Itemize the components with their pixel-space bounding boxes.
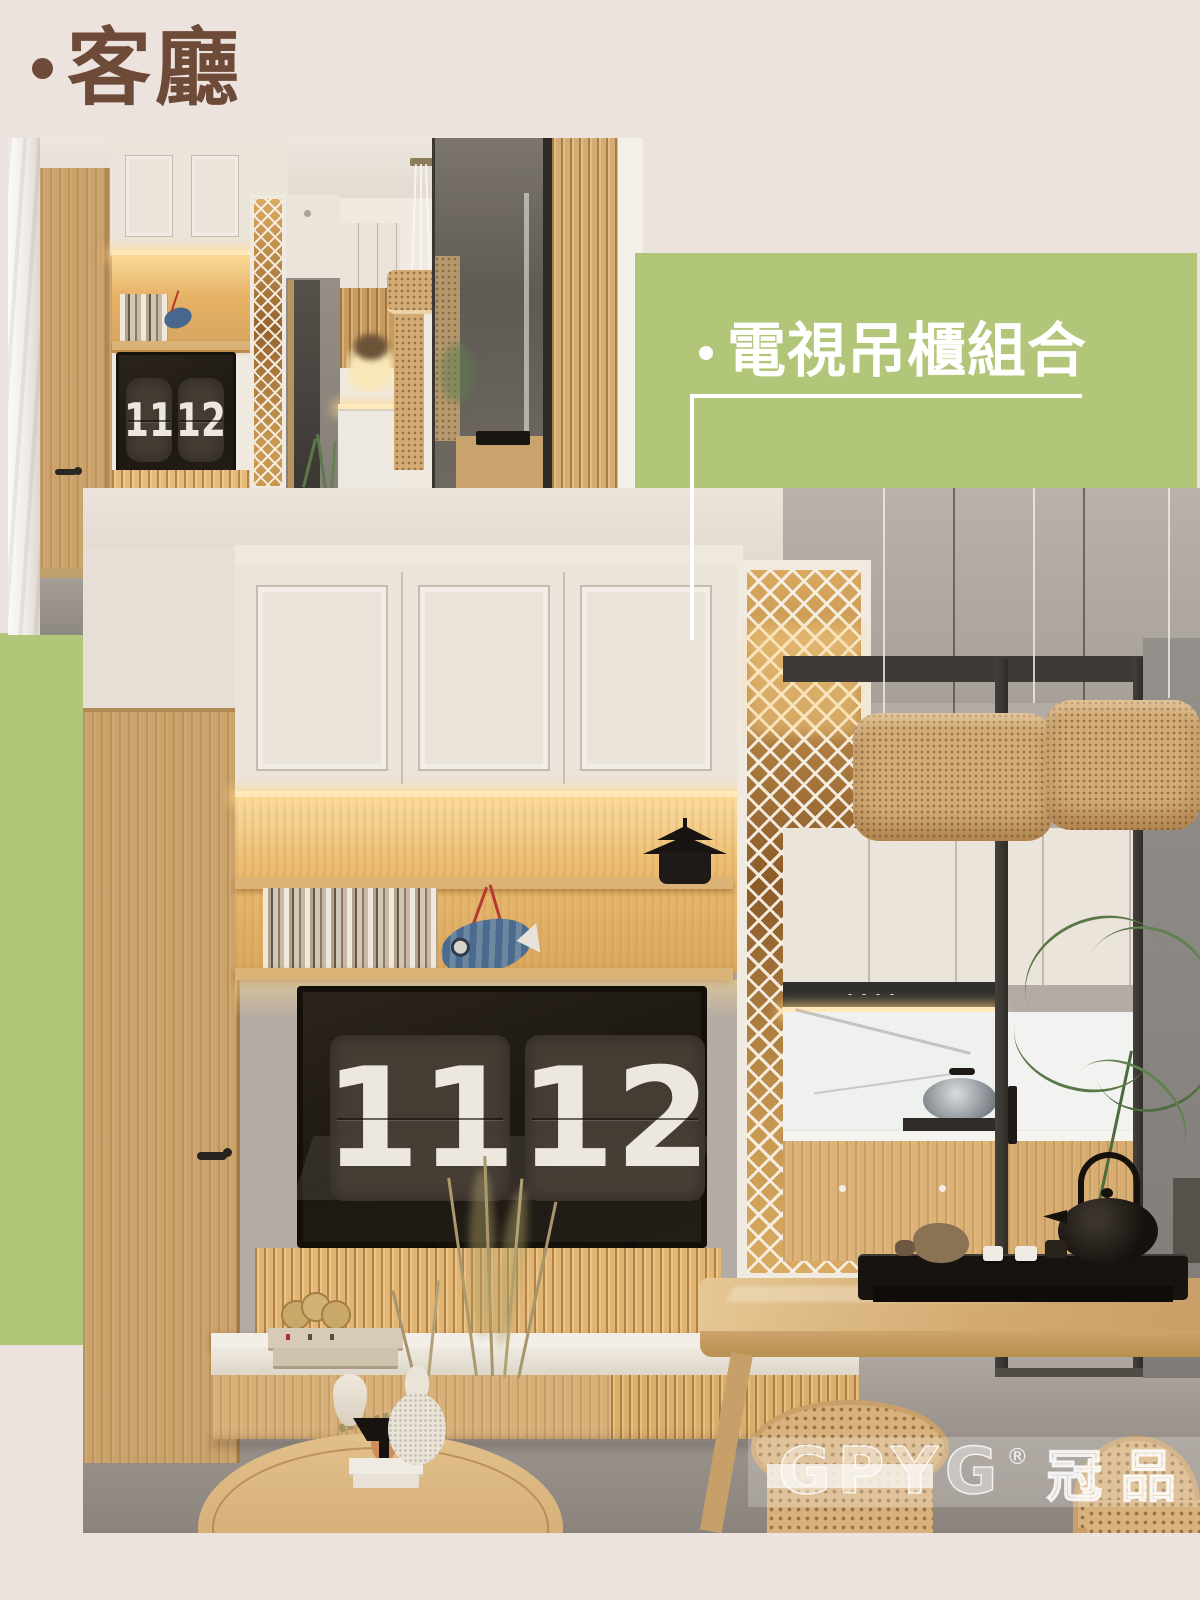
plant-stand	[1173, 1178, 1200, 1263]
marble-vein	[795, 1008, 970, 1054]
flip-clock-card: 12	[525, 1035, 705, 1201]
photo-tv-wall-closeup: 11 12	[83, 488, 1200, 1533]
label-bullet: ·	[699, 346, 713, 360]
flip-clock-minutes: 12	[176, 393, 226, 447]
shelf-board	[112, 341, 252, 350]
bamboo-scroll	[321, 1300, 351, 1330]
cabinet-cornice	[235, 545, 743, 567]
mirror-tray-reflection	[476, 431, 530, 445]
watermark-cjk-text: 冠品	[1046, 1432, 1194, 1513]
artwork-shade	[354, 334, 388, 360]
cabinet-door	[184, 148, 246, 244]
page-title-text: 客廳	[67, 24, 243, 112]
teapot-knob	[1101, 1188, 1113, 1198]
tea-cup	[1015, 1246, 1037, 1261]
mirror-doorframe-reflection	[524, 193, 529, 443]
white-speckled-vase	[388, 1393, 446, 1465]
mirror	[432, 138, 546, 490]
cabinet-knob	[839, 1185, 846, 1192]
cabinet-door	[243, 572, 403, 784]
range-hood	[783, 982, 998, 1008]
tea-tray-base	[873, 1286, 1173, 1302]
pendant-wire	[1168, 488, 1170, 698]
wok-handle	[949, 1068, 975, 1075]
hall-wall-upper	[286, 195, 340, 285]
door-handle-plate	[74, 467, 82, 475]
stacked-book	[273, 1348, 398, 1369]
book-mark	[308, 1334, 312, 1340]
ornament-small	[895, 1240, 915, 1256]
door-handle-plate	[223, 1148, 232, 1157]
curtain	[8, 138, 40, 635]
poster-page: · 客廳 11	[0, 0, 1200, 1600]
dried-plant-fluff	[469, 1168, 495, 1338]
shelf-board	[235, 968, 733, 980]
wok	[923, 1078, 997, 1122]
section-banner: · 電視吊櫃組合	[635, 253, 1197, 488]
dark-tea-cup	[1045, 1240, 1067, 1258]
sideboard	[338, 409, 400, 492]
book-seal	[286, 1334, 290, 1340]
glass-door-handle	[1008, 1086, 1017, 1144]
pagoda-lantern	[643, 818, 727, 888]
section-label: · 電視吊櫃組合	[699, 303, 1087, 388]
alcove-light	[112, 250, 252, 255]
wood-slat-wall	[552, 138, 618, 490]
cabinet-knob	[939, 1185, 946, 1192]
pagoda-body	[659, 852, 711, 884]
book-mark	[330, 1334, 334, 1340]
small-book-stack	[353, 1474, 419, 1488]
rattan-panel	[394, 298, 424, 470]
mirror-frame-right	[543, 138, 552, 490]
pendant-wire	[883, 488, 885, 716]
registered-trademark-icon: ®	[1006, 1445, 1028, 1470]
pendant-wire	[1083, 488, 1085, 700]
flip-clock-minutes: 12	[519, 1038, 711, 1199]
cabinet-door	[118, 148, 180, 244]
title-bullet: ·	[32, 58, 53, 79]
bronze-ornament	[913, 1223, 969, 1263]
rattan-pendant-lamp	[1045, 700, 1200, 830]
green-accent-strip	[0, 633, 83, 1345]
dining-table-edge	[700, 1331, 1200, 1357]
label-connector-vline	[690, 394, 694, 640]
tea-cup	[983, 1246, 1003, 1261]
flip-clock-hours: 11	[124, 393, 174, 447]
watermark-brand-text: GPYG	[778, 1435, 1004, 1509]
ceiling-spot-light	[304, 210, 311, 217]
rattan-pendant-lamp	[853, 713, 1053, 841]
tv-screen: 11 12	[297, 986, 707, 1248]
pendant-mount	[410, 158, 434, 166]
hood-buttons	[843, 992, 903, 997]
curtain-folds	[8, 138, 40, 635]
mirror-frame-left	[432, 138, 435, 490]
brand-watermark: GPYG ® 冠品	[748, 1437, 1200, 1507]
teapot	[1058, 1198, 1158, 1264]
mirror-plant-reflection	[440, 343, 474, 403]
cabinet-door	[567, 572, 725, 784]
alcove-light	[235, 791, 743, 797]
flip-clock-card: 11	[126, 378, 172, 462]
left-wall	[83, 548, 240, 713]
cabinet-door	[405, 572, 565, 784]
label-connector-underline	[690, 394, 1082, 398]
pendant-wire	[953, 488, 955, 713]
books-row	[120, 294, 168, 342]
page-title: · 客廳	[32, 24, 243, 112]
books-row	[263, 888, 438, 970]
lattice-screen	[250, 195, 286, 490]
pendant-wire	[420, 164, 422, 274]
pendant-wire	[1033, 488, 1035, 703]
dark-doorway	[294, 280, 320, 490]
bowl-stem	[379, 1440, 389, 1458]
section-label-text: 電視吊櫃組合	[727, 303, 1087, 388]
flip-clock-card: 12	[178, 378, 224, 462]
